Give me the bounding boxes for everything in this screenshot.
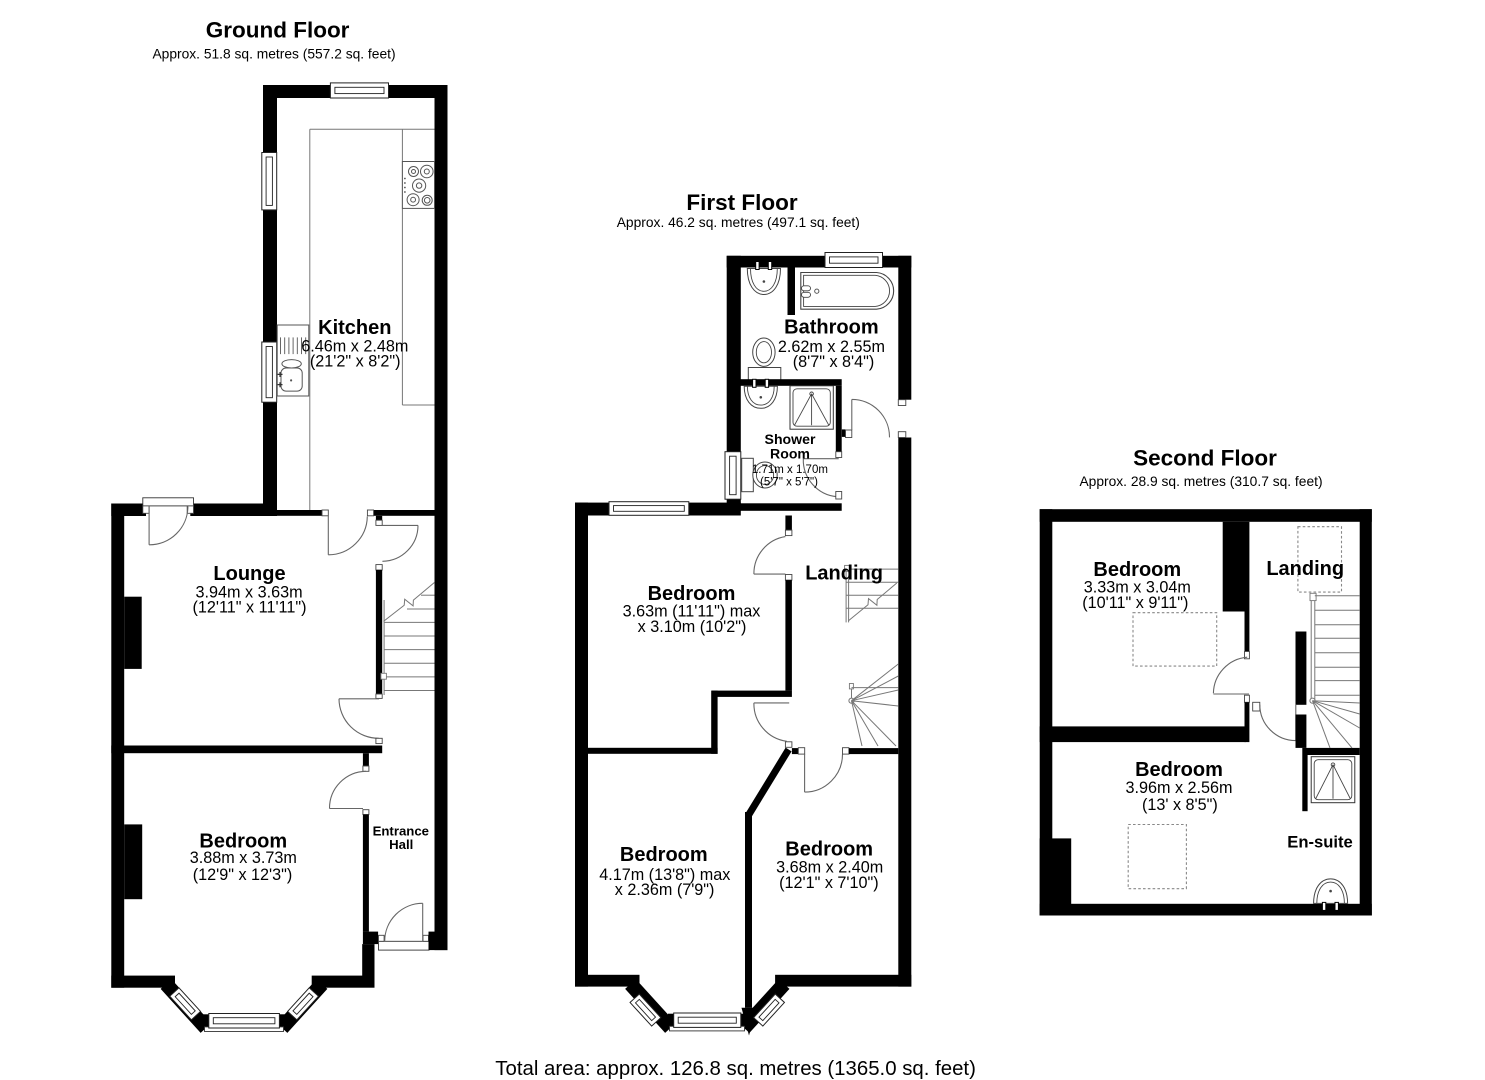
svg-text:(12'1" x 7'10"): (12'1" x 7'10") bbox=[779, 874, 879, 892]
svg-text:Bedroom: Bedroom bbox=[1135, 759, 1223, 781]
svg-text:Lounge: Lounge bbox=[213, 563, 285, 585]
svg-text:(8'7" x 8'4"): (8'7" x 8'4") bbox=[793, 353, 875, 371]
svg-text:1.71m x 1.70m: 1.71m x 1.70m bbox=[752, 464, 828, 476]
svg-text:x 2.36m (7'9"): x 2.36m (7'9") bbox=[615, 881, 715, 899]
svg-text:Bathroom: Bathroom bbox=[784, 317, 878, 339]
svg-text:Hall: Hall bbox=[389, 837, 413, 852]
svg-text:Bedroom: Bedroom bbox=[785, 838, 873, 860]
svg-text:Approx. 28.9 sq. metres (310.7: Approx. 28.9 sq. metres (310.7 sq. feet) bbox=[1079, 474, 1322, 489]
svg-text:(12'11" x 11'11"): (12'11" x 11'11") bbox=[193, 598, 307, 616]
svg-text:Room: Room bbox=[770, 446, 810, 462]
svg-text:En-suite: En-suite bbox=[1287, 832, 1352, 851]
svg-text:Approx. 46.2 sq. metres (497.1: Approx. 46.2 sq. metres (497.1 sq. feet) bbox=[617, 215, 860, 230]
svg-text:(5'7" x 5'7"): (5'7" x 5'7") bbox=[760, 477, 818, 489]
svg-text:(10'11" x 9'11"): (10'11" x 9'11") bbox=[1082, 594, 1188, 612]
svg-text:Approx. 51.8 sq. metres (557.2: Approx. 51.8 sq. metres (557.2 sq. feet) bbox=[152, 46, 395, 61]
svg-text:Ground Floor: Ground Floor bbox=[206, 18, 350, 43]
svg-text:3.96m x 2.56m: 3.96m x 2.56m bbox=[1125, 779, 1232, 797]
svg-text:Kitchen: Kitchen bbox=[318, 317, 391, 339]
svg-text:(21'2" x 8'2"): (21'2" x 8'2") bbox=[310, 352, 401, 370]
svg-text:Landing: Landing bbox=[805, 562, 883, 584]
svg-text:Total area: approx. 126.8 sq.: Total area: approx. 126.8 sq. metres (13… bbox=[495, 1058, 976, 1080]
svg-text:Landing: Landing bbox=[1266, 558, 1344, 580]
svg-text:First Floor: First Floor bbox=[686, 190, 797, 215]
svg-text:x 3.10m (10'2"): x 3.10m (10'2") bbox=[638, 618, 747, 636]
svg-text:(13' x 8'5"): (13' x 8'5") bbox=[1142, 796, 1218, 814]
svg-text:(12'9" x 12'3"): (12'9" x 12'3") bbox=[193, 866, 293, 884]
svg-text:Second Floor: Second Floor bbox=[1133, 445, 1277, 470]
svg-text:Bedroom: Bedroom bbox=[620, 844, 708, 866]
svg-text:3.88m x 3.73m: 3.88m x 3.73m bbox=[190, 849, 297, 867]
